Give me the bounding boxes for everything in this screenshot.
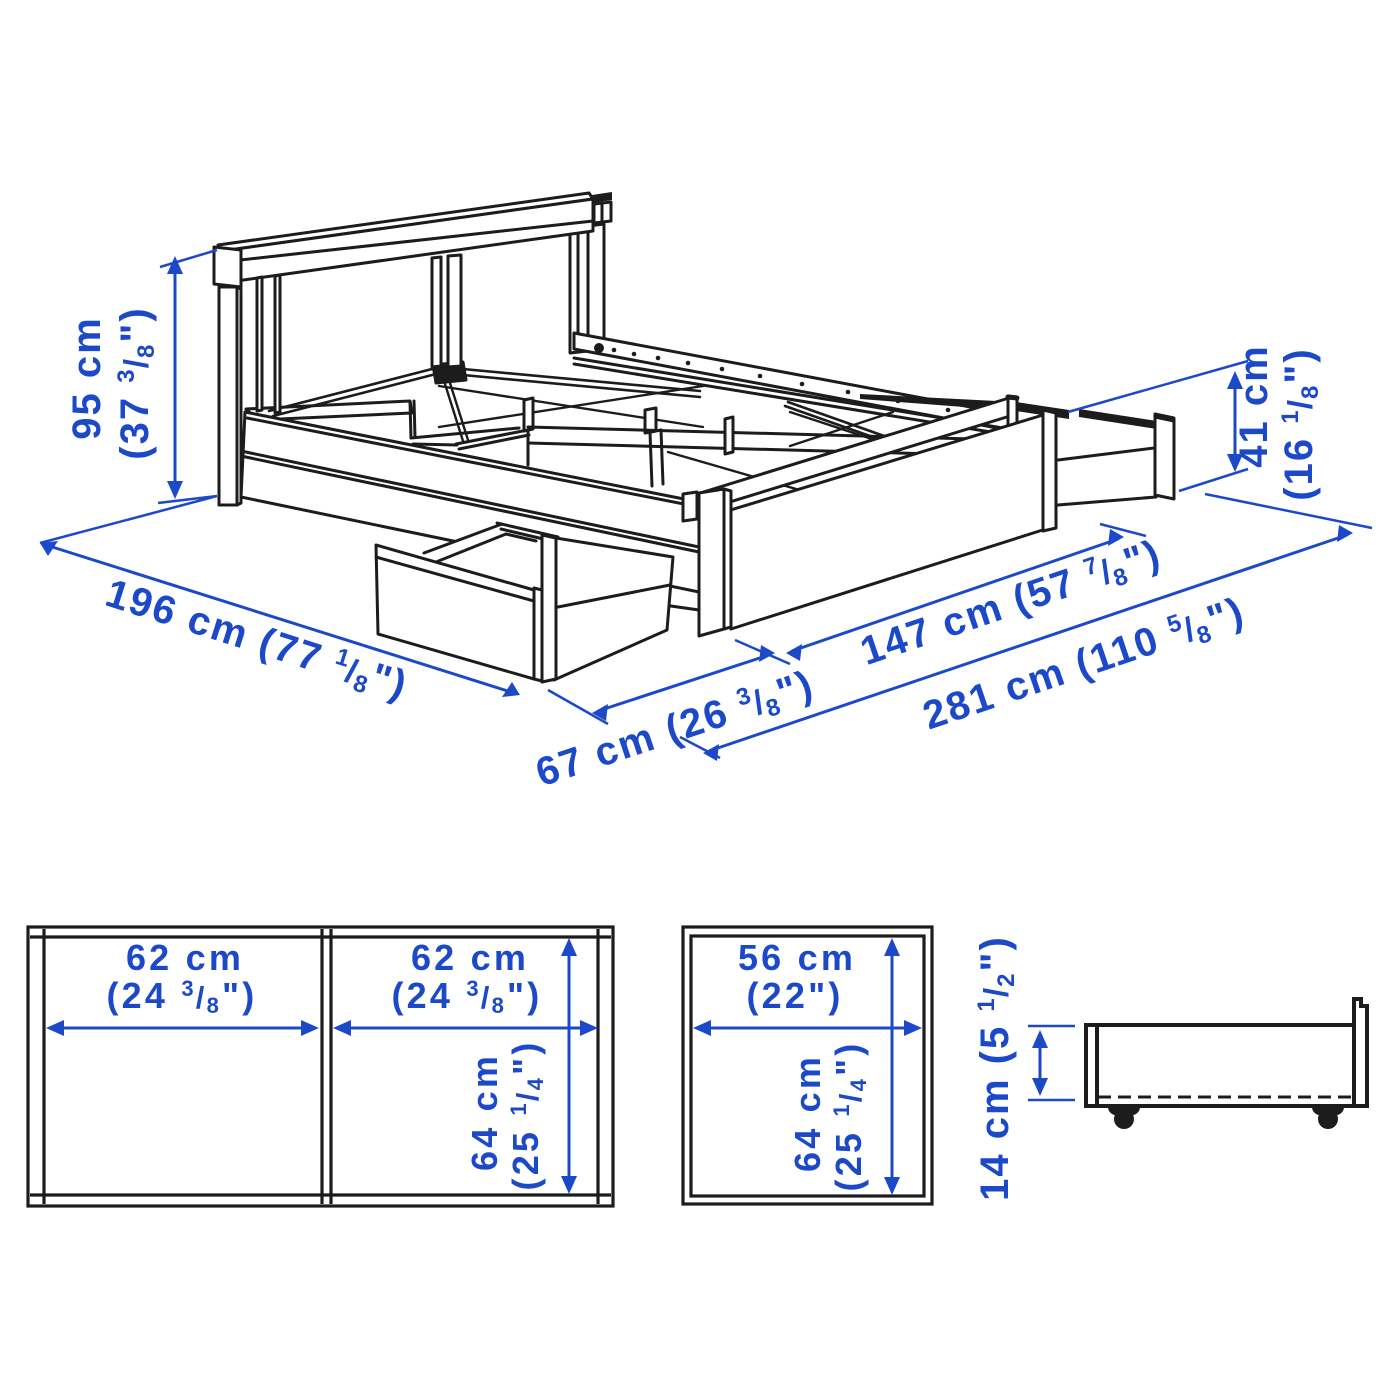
svg-text:62 cm: 62 cm bbox=[411, 937, 529, 978]
svg-text:(37 3/8"): (37 3/8") bbox=[113, 306, 160, 459]
svg-text:62 cm: 62 cm bbox=[126, 937, 244, 978]
svg-text:(22"): (22") bbox=[746, 975, 843, 1016]
svg-text:56 cm: 56 cm bbox=[738, 937, 856, 978]
svg-text:(16 1/8"): (16 1/8") bbox=[1277, 347, 1324, 500]
svg-text:41 cm: 41 cm bbox=[1232, 344, 1276, 467]
svg-text:64 cm: 64 cm bbox=[787, 1054, 828, 1172]
svg-text:64 cm: 64 cm bbox=[464, 1053, 505, 1171]
svg-text:95 cm: 95 cm bbox=[65, 316, 109, 439]
